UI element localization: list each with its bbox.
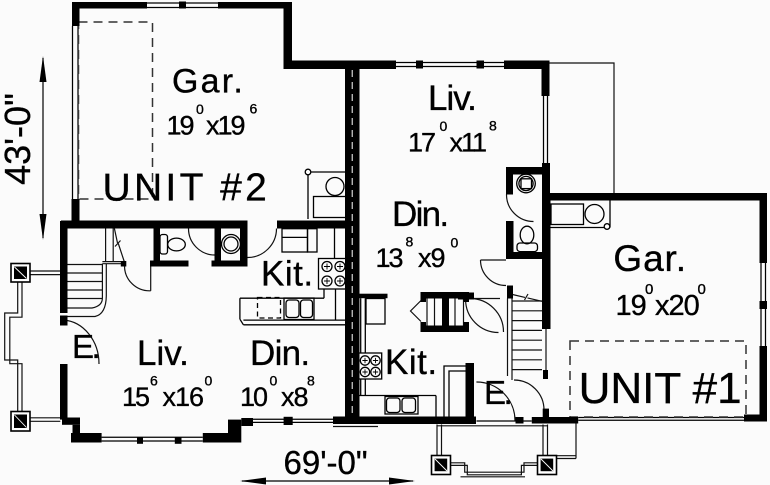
svg-text:0: 0 <box>645 281 653 298</box>
svg-text:Din.: Din. <box>392 195 447 234</box>
svg-text:10: 10 <box>240 382 267 412</box>
svg-text:E.: E. <box>484 374 511 411</box>
svg-text:19: 19 <box>616 290 646 322</box>
svg-text:Liv.: Liv. <box>137 334 189 373</box>
svg-text:17: 17 <box>408 128 435 158</box>
svg-text:0: 0 <box>451 235 459 251</box>
svg-text:x11: x11 <box>450 128 487 158</box>
svg-text:Kit.: Kit. <box>385 343 438 382</box>
svg-text:UNIT #1: UNIT #1 <box>579 364 742 413</box>
svg-text:x8: x8 <box>281 382 308 412</box>
svg-text:Liv.: Liv. <box>428 79 476 118</box>
svg-text:19: 19 <box>167 111 194 141</box>
svg-text:8: 8 <box>489 118 497 134</box>
svg-text:8: 8 <box>307 373 315 389</box>
svg-text:0: 0 <box>440 118 448 134</box>
svg-text:8: 8 <box>406 234 414 250</box>
svg-text:6: 6 <box>250 101 258 117</box>
svg-text:E.: E. <box>72 328 99 365</box>
svg-text:69'-0": 69'-0" <box>284 444 368 481</box>
svg-text:x9: x9 <box>418 243 445 273</box>
svg-text:0: 0 <box>196 101 204 117</box>
svg-text:x16: x16 <box>163 382 204 412</box>
svg-text:43'-0": 43'-0" <box>0 93 38 185</box>
svg-text:x19: x19 <box>206 111 245 141</box>
svg-text:Kit.: Kit. <box>261 255 314 294</box>
svg-text:UNIT #2: UNIT #2 <box>103 167 271 210</box>
svg-text:Din.: Din. <box>250 334 309 373</box>
svg-text:0: 0 <box>270 373 278 389</box>
svg-text:Gar.: Gar. <box>172 63 245 101</box>
svg-text:0: 0 <box>205 373 213 389</box>
svg-text:Gar.: Gar. <box>613 238 687 279</box>
svg-text:x20: x20 <box>655 290 699 322</box>
svg-text:15: 15 <box>122 382 149 412</box>
svg-text:0: 0 <box>698 281 706 298</box>
svg-text:13: 13 <box>376 243 403 273</box>
svg-text:6: 6 <box>150 373 158 389</box>
